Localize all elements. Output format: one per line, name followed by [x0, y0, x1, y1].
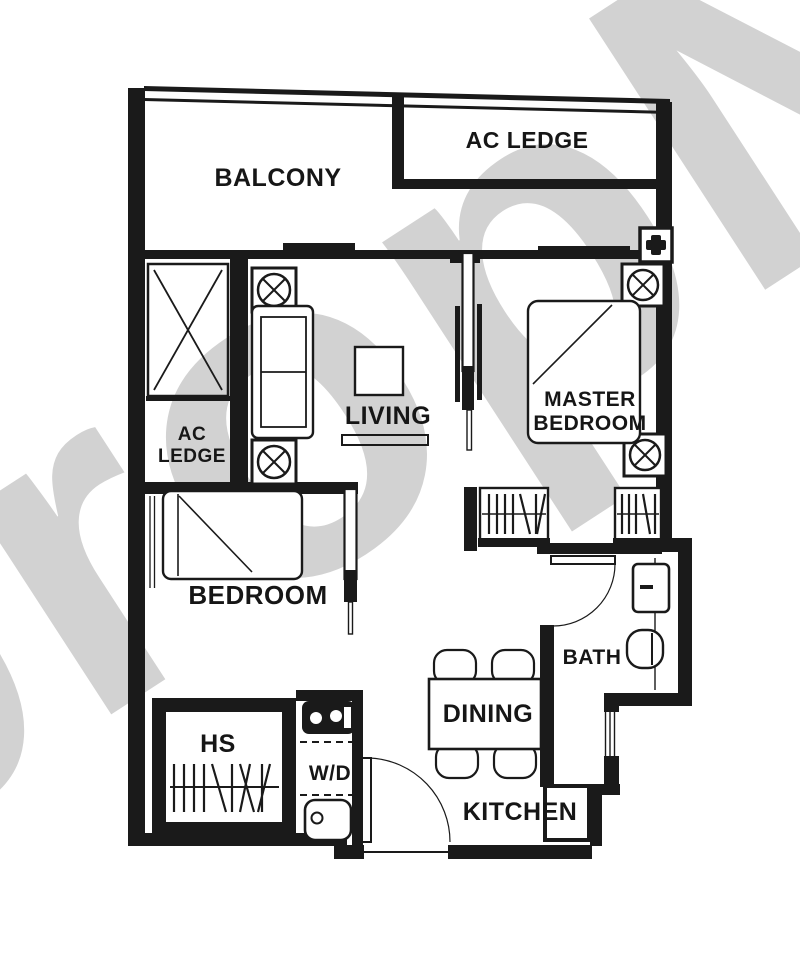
balcony-label: BALCONY: [214, 164, 341, 192]
kitchen-window: [602, 712, 621, 756]
fan-coil-unit-icon: [622, 264, 664, 306]
wardrobe: [613, 488, 663, 547]
wd-label: W/D: [309, 762, 351, 785]
master-bedroom-label: MASTER: [544, 388, 636, 411]
bedroom-label: BEDROOM: [188, 580, 327, 610]
master-bedroom-label: BEDROOM: [533, 412, 646, 435]
service-shaft: [148, 264, 228, 396]
kitchen-label: KITCHEN: [463, 798, 578, 826]
ac-ledge-top-label: AC LEDGE: [466, 127, 589, 153]
wardrobe: [478, 488, 550, 547]
cooker-hob: [302, 701, 355, 734]
coffee-table: [355, 347, 403, 395]
living-label: LIVING: [345, 402, 431, 430]
bed: [163, 491, 302, 579]
vanity-basin: [633, 564, 669, 612]
bath-label: BATH: [563, 646, 622, 669]
toilet: [627, 630, 663, 668]
floor-plan-canvas: propNex: [0, 0, 800, 970]
bath-door: [551, 556, 615, 626]
dining-label: DINING: [443, 700, 534, 728]
bedroom-window: [150, 496, 155, 588]
ac-ledge-left-label: AC: [178, 424, 206, 445]
fan-coil-unit-icon: [252, 440, 296, 484]
tv-console: [342, 435, 428, 445]
bedroom-sliding-door: [344, 489, 357, 634]
bath-fixtures: [551, 556, 669, 690]
sink: [305, 800, 351, 840]
sliding-partition: [455, 253, 482, 450]
sofa: [252, 306, 313, 438]
hs-label: HS: [200, 730, 236, 758]
ac-ledge-left-label: LEDGE: [158, 446, 226, 467]
ac-isolator-icon: [640, 228, 672, 262]
floor-plan-drawing: BALCONY AC LEDGE AC LEDGE LIVING MASTER …: [0, 0, 800, 970]
